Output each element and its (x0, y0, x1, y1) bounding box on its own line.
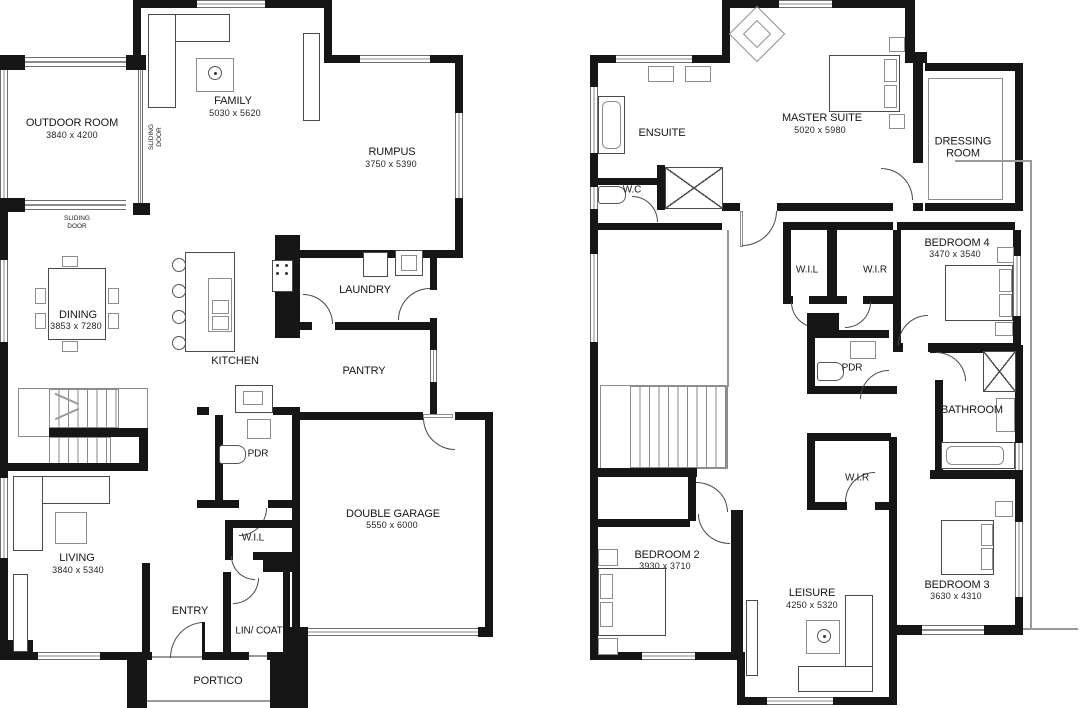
wall (455, 63, 463, 113)
label-kitchen: KITCHEN (211, 355, 259, 367)
wall (590, 55, 616, 63)
label-bedroom-4: BEDROOM 4 (924, 237, 989, 249)
dims-dining: 3853 x 7280 (50, 321, 102, 331)
dining-chair (62, 341, 78, 352)
void-edge (727, 230, 729, 387)
window (0, 478, 8, 558)
dims-outdoor-room: 3840 x 4200 (46, 130, 98, 140)
dims-leisure: 4250 x 5320 (786, 600, 838, 610)
plant-dot (823, 635, 826, 638)
dining-chair (35, 288, 46, 304)
burner-dot (285, 264, 288, 267)
window (197, 0, 265, 8)
dims-bedroom-2: 3930 x 3710 (639, 561, 691, 571)
linen-cupboard (665, 167, 723, 209)
wall (0, 463, 148, 471)
label-outdoor-room: OUTDOOR ROOM (26, 117, 118, 129)
wall (657, 165, 665, 210)
burner-dot (285, 272, 288, 275)
wall (430, 382, 437, 415)
label-ensuite: ENSUITE (639, 127, 686, 139)
wall (1015, 597, 1023, 635)
label-family: FAMILY (214, 95, 252, 107)
window (922, 625, 984, 635)
label-bedroom-2: BEDROOM 2 (634, 549, 699, 561)
door-arc (423, 418, 455, 450)
tv-unit (303, 33, 320, 121)
wall (590, 153, 598, 187)
wall (807, 502, 847, 510)
label-portico: PORTICO (193, 675, 242, 687)
label-double-garage: DOUBLE GARAGE (346, 508, 440, 520)
wall (0, 212, 8, 260)
wall (807, 433, 891, 441)
door-arc (936, 352, 966, 381)
door-arc (860, 370, 889, 399)
dims-bedroom-4: 3470 x 3540 (929, 249, 981, 259)
door-arc (233, 578, 259, 604)
window (1013, 256, 1021, 316)
wall (133, 8, 141, 63)
pillow (999, 269, 1012, 292)
label-lin-coat: LIN/ COAT (235, 625, 282, 636)
window (1015, 522, 1023, 597)
wall (133, 0, 197, 8)
wall (300, 412, 423, 420)
wall (692, 55, 722, 63)
window (590, 254, 598, 342)
wall (905, 52, 927, 63)
wall (722, 8, 730, 63)
wall (485, 412, 493, 628)
dims-family: 5030 x 5620 (209, 108, 261, 118)
window (38, 652, 100, 660)
wall (897, 625, 922, 635)
label-leisure: LEISURE (789, 587, 835, 599)
wall (722, 203, 740, 211)
dining-chair (108, 313, 119, 329)
wall (590, 468, 697, 477)
bedside-table (598, 549, 618, 566)
wall (285, 627, 308, 708)
wall (0, 198, 25, 212)
label-sliding-door-side: SLIDING DOOR (148, 120, 164, 154)
wall (590, 342, 598, 460)
wall (590, 223, 722, 230)
island-sink-bowl (212, 300, 229, 314)
bedside-table (889, 37, 905, 52)
wall (268, 500, 292, 508)
wall (133, 203, 150, 215)
wall (428, 250, 463, 258)
bench-basin (243, 391, 263, 405)
basin (850, 341, 876, 359)
bar-stool (172, 336, 186, 350)
wall (263, 552, 292, 572)
wall (335, 322, 430, 330)
wall (197, 407, 209, 415)
wall (0, 652, 38, 660)
bar-stool (172, 284, 186, 298)
window (616, 55, 692, 63)
sill-line (249, 655, 267, 657)
wall (332, 55, 360, 63)
wall (430, 55, 463, 63)
basin (648, 66, 674, 82)
wall (807, 441, 815, 510)
label-entry: ENTRY (172, 605, 209, 617)
window (779, 0, 832, 8)
label-wir-2: W.I.R (845, 472, 869, 483)
door-arc (231, 556, 255, 580)
bar-stool (172, 258, 186, 272)
bedside-table (997, 247, 1014, 263)
wall (783, 222, 893, 230)
window (590, 187, 598, 209)
dims-bedroom-3: 3630 x 4310 (930, 591, 982, 601)
sofa (148, 14, 176, 108)
label-sliding-door-bottom: SLIDING DOOR (60, 215, 94, 231)
bedside-table (995, 322, 1013, 336)
wall (925, 203, 1023, 211)
wall (930, 470, 1023, 479)
dims-rumpus: 3750 x 5390 (365, 159, 417, 169)
pillow (884, 85, 897, 108)
wall (0, 342, 8, 478)
plant-icon (208, 66, 222, 80)
bar-stool (172, 310, 186, 324)
wall (913, 203, 923, 211)
sofa (798, 666, 873, 692)
eave-line (1030, 162, 1032, 628)
dims-master-suite: 5020 x 5980 (794, 125, 846, 135)
door-arc (845, 302, 871, 328)
wall (1015, 71, 1023, 211)
window (360, 55, 430, 63)
window (642, 652, 695, 660)
sofa (13, 476, 43, 551)
wall (590, 209, 598, 254)
window (767, 697, 833, 705)
washing-machine (363, 252, 388, 277)
window (455, 113, 463, 198)
door-arc (698, 514, 730, 544)
wall (925, 63, 1023, 71)
label-living: LIVING (59, 552, 94, 564)
island-sink-bowl (212, 316, 229, 330)
pillow (600, 602, 613, 627)
garage-door (305, 628, 478, 636)
window (1015, 443, 1023, 470)
burner-dot (276, 264, 279, 267)
wall (205, 652, 249, 660)
label-wil: W.I.L (242, 532, 264, 543)
door-arc (398, 288, 430, 320)
wall (430, 318, 437, 350)
label-master-suite: MASTER SUITE (782, 112, 862, 124)
label-dressing-room: DRESSING ROOM (927, 136, 999, 161)
wall (0, 558, 8, 652)
wall (1015, 477, 1023, 522)
door-arc (898, 315, 928, 345)
door-arc (632, 196, 658, 222)
wall (265, 0, 332, 8)
pillow (600, 574, 613, 599)
screen-line (25, 57, 128, 67)
wall (722, 0, 779, 8)
window (430, 350, 437, 382)
wall (731, 510, 743, 660)
door-arc (881, 168, 913, 200)
plant-dot (214, 72, 217, 75)
cabinet (13, 574, 28, 652)
dining-chair (108, 288, 119, 304)
wall (889, 437, 897, 630)
wall (913, 63, 923, 163)
pillow (884, 59, 897, 82)
dining-chair (35, 313, 46, 329)
linen-cupboard (983, 351, 1016, 392)
door-arc (170, 622, 204, 658)
label-pdr: PDR (842, 362, 863, 373)
wall (897, 222, 1015, 230)
basin (685, 66, 711, 82)
plant-icon (817, 629, 831, 643)
wall (688, 477, 696, 521)
window (590, 87, 598, 153)
floorplan-canvas: OUTDOOR ROOM 3840 x 4200 FAMILY 5030 x 5… (0, 0, 1080, 708)
wall (783, 230, 791, 304)
sliding-door-track (25, 200, 126, 210)
toilet (219, 445, 246, 464)
label-rumpus: RUMPUS (368, 146, 415, 158)
wall (875, 502, 889, 510)
wall (598, 519, 690, 527)
wall (324, 8, 332, 63)
label-wil: W.I.L (796, 264, 818, 275)
wall (827, 230, 837, 304)
wall (832, 0, 913, 8)
wall (1013, 316, 1021, 345)
basin (247, 419, 271, 439)
wall (0, 55, 25, 70)
sliding-door-track (138, 70, 143, 203)
label-pdr: PDR (248, 448, 269, 459)
dims-double-garage: 5550 x 6000 (366, 520, 418, 530)
bedside-table (598, 638, 618, 655)
portico-pillar (127, 652, 147, 708)
rug (55, 512, 87, 544)
wall (777, 203, 893, 211)
wall (807, 330, 889, 338)
bathtub-inner (602, 101, 621, 149)
label-bedroom-3: BEDROOM 3 (924, 579, 989, 591)
tv-unit (746, 600, 758, 676)
wall (223, 572, 231, 652)
wall (142, 563, 150, 660)
wall (590, 63, 598, 87)
dims-living: 3840 x 5340 (52, 565, 104, 575)
bathtub-inner (946, 446, 1004, 465)
wall (807, 338, 815, 386)
wall (478, 627, 493, 637)
wall (590, 460, 598, 652)
window (0, 260, 8, 342)
staircase (630, 386, 727, 468)
label-pantry: PANTRY (342, 365, 385, 377)
label-bathroom: BATHROOM (941, 404, 1003, 416)
burner-dot (276, 272, 279, 275)
dining-chair (62, 256, 78, 267)
staircase (49, 437, 111, 464)
wall (292, 415, 300, 652)
pillow (981, 548, 993, 570)
bedside-table (889, 114, 905, 129)
toilet (817, 362, 844, 381)
step-line (147, 700, 270, 702)
wall (273, 407, 300, 415)
wall (455, 198, 463, 258)
door-arc (696, 482, 728, 512)
wall (893, 230, 901, 343)
label-wc: W.C (623, 184, 642, 195)
wall (745, 697, 767, 705)
label-wir: W.I.R (863, 264, 887, 275)
window (0, 70, 8, 198)
door-arc (742, 211, 777, 246)
stair-wall (49, 428, 148, 437)
laundry-tub-bowl (401, 255, 417, 271)
wall (833, 697, 893, 705)
wall (1013, 230, 1021, 256)
pillow (981, 524, 993, 546)
door-arc (303, 294, 333, 324)
wall (889, 630, 897, 705)
wall (197, 500, 239, 508)
pillow (999, 294, 1012, 317)
bedside-table (995, 501, 1013, 517)
label-laundry: LAUNDRY (339, 284, 391, 296)
wall (1015, 345, 1023, 443)
eave-line (1023, 628, 1078, 630)
wall (225, 520, 292, 528)
wall (905, 0, 915, 55)
label-dining: DINING (59, 309, 97, 321)
wall (430, 258, 437, 290)
